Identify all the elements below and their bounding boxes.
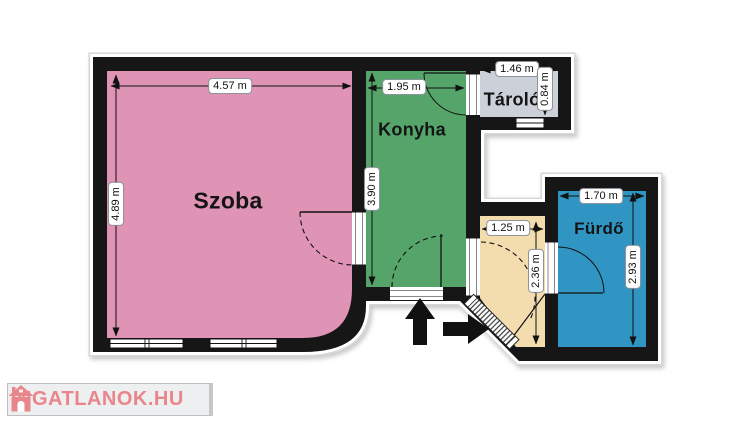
house-icon [8,384,34,412]
door-szoba-konyha [352,209,366,268]
tarolo-label: Tároló [484,90,541,111]
furdo-width-dimension: 1.70 m [579,188,623,204]
eloter-width-dimension: 1.25 m [486,220,530,236]
tarolo-width-dimension: 1.46 m [495,61,539,77]
szoba-height-dimension: 4.89 m [108,182,124,226]
eloter-height-dimension: 2.36 m [528,249,544,293]
szoba-window-right [210,339,277,348]
furdo-label: Fürdő [574,219,624,239]
konyha-label: Konyha [378,120,446,141]
door-konyha-balcony [387,287,447,300]
konyha-floor [366,71,466,287]
tarolo-height-dimension: 0.84 m [537,67,553,111]
szoba-label: Szoba [193,188,262,215]
door-eloter-furdo [545,239,558,297]
konyha-width-dimension: 1.95 m [382,79,426,95]
floor-plan: Szoba Konyha Tároló Fürdő 4.57 m 4.89 m … [0,0,730,424]
watermark-text: INGATLANOK.HU [11,388,184,411]
konyha-height-dimension: 3.90 m [364,167,380,211]
szoba-window-left [110,339,183,348]
szoba-width-dimension: 4.57 m [208,78,252,94]
opening-konyha-eloter [466,235,480,299]
door-konyha-tarolo [466,71,480,119]
furdo-height-dimension: 2.93 m [625,245,641,289]
tarolo-window [516,118,544,128]
watermark: INGATLANOK.HU [7,383,213,416]
